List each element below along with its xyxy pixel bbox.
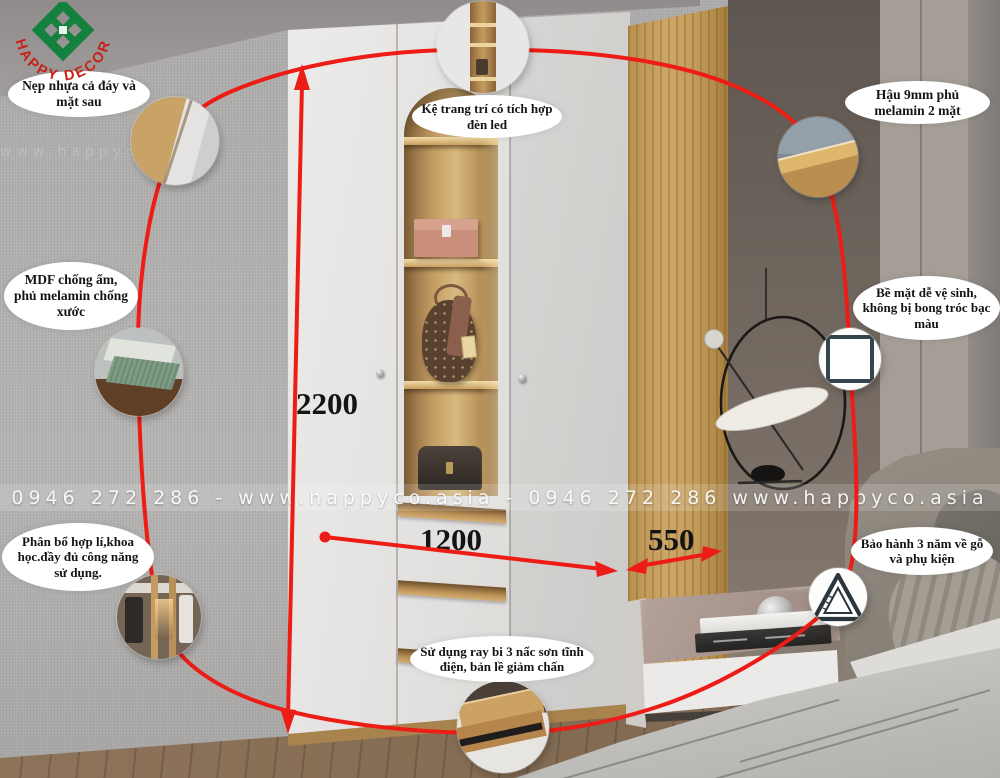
mdf-board-photo [95, 328, 183, 416]
handbag-tag [461, 335, 477, 358]
callout-mdf-material: MDF chống ẩm, phủ melamin chống xước [4, 262, 138, 330]
shelf-item [476, 59, 488, 75]
callout-layout: Phân bổ hợp lí,khoa học.đầy đủ công năng… [2, 523, 154, 591]
led-light-glow [480, 128, 498, 496]
triangle-ruler-icon [809, 568, 867, 626]
callout-warranty: Bảo hành 3 năm về gỗ và phụ kiện [851, 527, 993, 575]
door-knob-left [376, 369, 384, 377]
back-panel-corner-photo [778, 117, 858, 197]
advertisement-canvas: www.happyco.asia 0946 272 286 - www.happ… [0, 0, 1000, 778]
callout-back-panel: Hậu 9mm phủ melamin 2 mặt [845, 81, 990, 124]
interior-light [155, 599, 173, 639]
triangle-ruler-badge [809, 568, 867, 626]
hanging-garment [125, 597, 143, 643]
white-surface-sample [819, 328, 881, 390]
door-seam [396, 12, 398, 738]
interior-layout-photo [117, 575, 201, 659]
open-display-niche [404, 88, 498, 496]
wood-corner-photo [131, 97, 219, 185]
shelf-detail-photo [437, 1, 529, 93]
dimension-height-label: 2200 [296, 386, 358, 422]
logo-diamond-icon [38, 5, 88, 55]
watermark-text: 0946 272 286 - www.happyco.asia - 0946 2… [11, 487, 988, 509]
happy-decor-logo: HAPPY DECOR [6, 2, 122, 94]
wood-corner-seam [158, 97, 195, 185]
blanket-fold [740, 689, 990, 763]
hanging-garment [179, 595, 193, 643]
storage-box [414, 219, 478, 257]
drawer-rail-photo [457, 681, 549, 773]
door-knob-right [518, 374, 526, 382]
callout-led-shelf: Kệ trang trí có tích hợp đèn led [412, 95, 562, 138]
dimension-depth-label: 550 [648, 522, 695, 558]
dimension-width-label: 1200 [420, 522, 482, 558]
callout-surface: Bề mặt dễ vệ sinh, không bị bong tróc bạ… [853, 276, 1000, 340]
watermark-band: 0946 272 286 - www.happyco.asia - 0946 2… [0, 484, 1000, 511]
white-square-icon [826, 335, 874, 383]
callout-drawer-rail: Sử dụng ray bi 3 nấc sơn tĩnh điện, bản … [410, 636, 594, 682]
